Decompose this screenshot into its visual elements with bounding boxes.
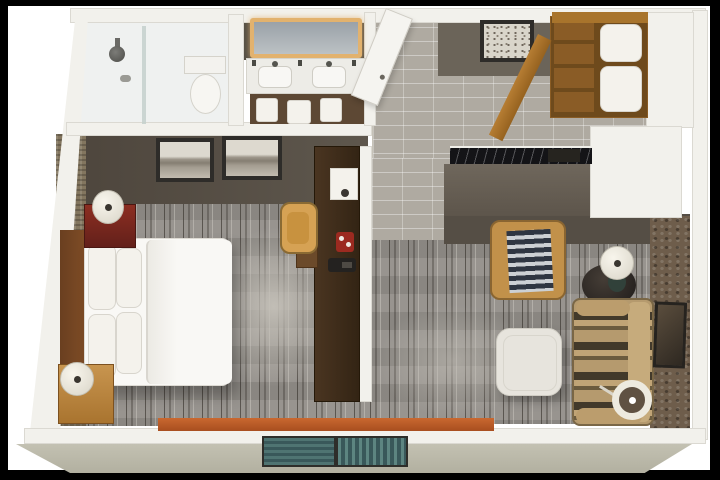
wall-bath-bedroom	[66, 122, 372, 136]
sofa-arm-top	[576, 300, 630, 316]
window-ledge	[158, 418, 494, 431]
entry-artwork	[480, 20, 534, 62]
vanity-mirror	[254, 22, 358, 54]
bedside-lamp-bottom	[60, 362, 94, 396]
toilet-tank	[184, 56, 226, 74]
shower-head-icon	[109, 46, 125, 62]
shower-glass-panel	[142, 26, 146, 124]
bedroom-artwork-left	[156, 138, 214, 182]
amenity-bottle-3	[352, 60, 356, 66]
shower-drain	[120, 75, 131, 82]
sink-right	[312, 66, 346, 88]
amenity-bottle-1	[252, 60, 256, 66]
bedside-lamp-top	[92, 190, 124, 224]
window-pane-left	[264, 438, 334, 465]
bed-pillow-1	[88, 244, 116, 310]
coffee-maker	[548, 149, 580, 162]
bedroom-artwork-right	[222, 136, 282, 180]
door-knob-icon	[379, 74, 386, 81]
toilet	[190, 74, 221, 114]
floor-lamp-bulb-icon	[629, 397, 636, 404]
floor-lamp	[612, 380, 652, 420]
bed-pillow-3	[116, 248, 142, 308]
desk-chair	[280, 202, 318, 254]
towel-2	[287, 100, 311, 124]
desk-chair-seat	[287, 212, 309, 244]
closet-shelves	[554, 20, 594, 114]
wall-lamp-dot-icon	[341, 189, 349, 197]
coffee-tray	[336, 232, 354, 252]
bed-pillow-4	[116, 312, 142, 374]
sink-left	[258, 66, 292, 88]
wall-lamp	[330, 168, 358, 200]
faucet-right-icon	[326, 61, 332, 67]
floorplan-stage	[0, 0, 720, 480]
striped-throw	[506, 229, 553, 293]
closet-pillows-top	[600, 24, 642, 62]
wall-entry-living	[590, 126, 682, 218]
duvet	[146, 240, 232, 384]
wall-closet-east	[646, 12, 694, 128]
divider-wall-cap	[358, 146, 372, 402]
ottoman	[496, 328, 562, 396]
wetbar-cabinet	[444, 164, 590, 216]
window-pane-right	[338, 438, 406, 465]
window	[262, 436, 408, 467]
closet-pillows-bottom	[600, 66, 642, 112]
armchair	[490, 220, 566, 300]
table-lamp	[600, 246, 634, 280]
living-artwork	[653, 301, 687, 368]
faucet-left-icon	[272, 61, 278, 67]
amenity-bottle-2	[298, 60, 302, 66]
towel-1	[256, 98, 278, 122]
wall-bath-vanity	[228, 14, 244, 126]
telephone	[328, 258, 356, 272]
wall-east	[692, 10, 708, 440]
window-mullion	[334, 438, 338, 465]
closet-header	[552, 12, 648, 23]
towel-3	[320, 98, 342, 122]
